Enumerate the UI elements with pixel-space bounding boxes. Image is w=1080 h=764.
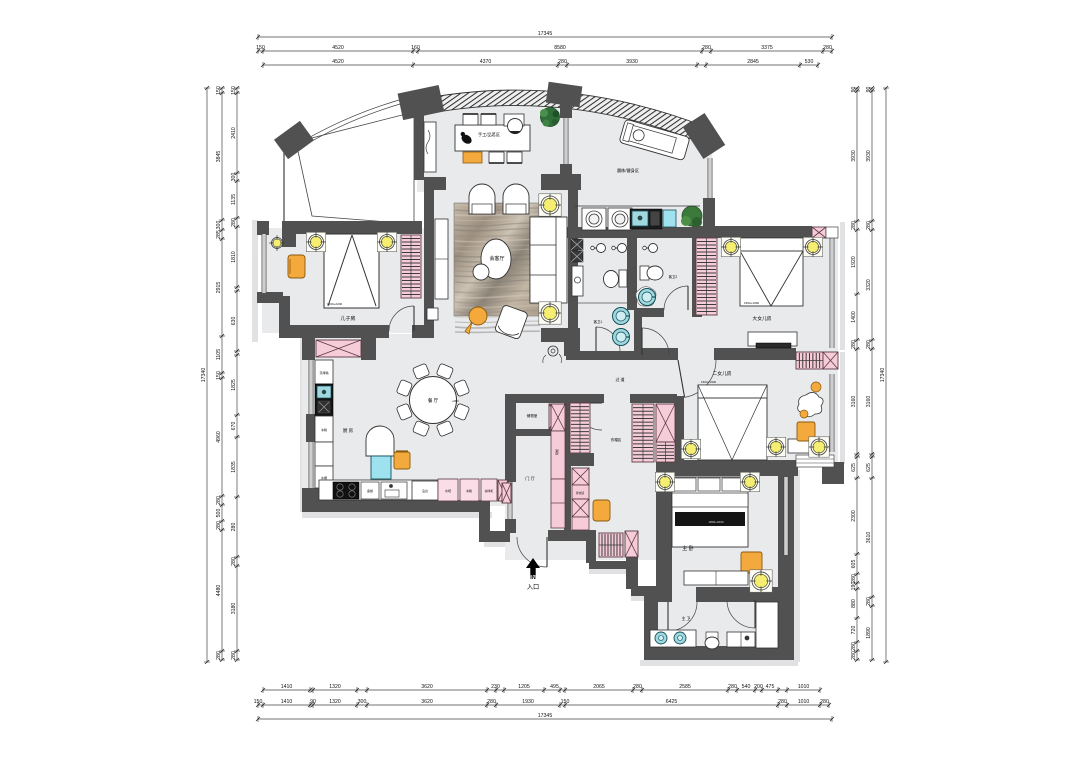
svg-text:625: 625	[866, 463, 872, 472]
svg-text:1135: 1135	[231, 194, 237, 205]
svg-text:17345: 17345	[538, 31, 553, 37]
svg-text:540: 540	[742, 684, 751, 690]
svg-text:1500+1900: 1500+1900	[744, 301, 759, 305]
svg-text:1105: 1105	[216, 349, 222, 360]
svg-text:3620: 3620	[421, 684, 433, 690]
svg-text:二女儿房: 二女儿房	[712, 370, 731, 377]
svg-text:儿子房: 儿子房	[340, 315, 355, 322]
svg-text:280: 280	[851, 221, 857, 230]
svg-text:280: 280	[851, 574, 857, 583]
svg-text:605: 605	[851, 560, 857, 569]
svg-text:150: 150	[254, 699, 263, 705]
svg-text:17340: 17340	[201, 368, 207, 383]
svg-text:1400: 1400	[851, 311, 857, 323]
svg-text:90: 90	[310, 699, 316, 705]
svg-text:门 厅: 门 厅	[525, 475, 535, 482]
svg-text:水吧: 水吧	[445, 488, 451, 493]
svg-text:1920: 1920	[851, 256, 857, 268]
svg-text:1010: 1010	[798, 684, 810, 690]
svg-text:4520: 4520	[332, 59, 344, 65]
svg-text:280: 280	[231, 523, 237, 532]
svg-text:3930: 3930	[866, 150, 872, 162]
svg-text:过 道: 过 道	[615, 376, 624, 382]
svg-text:3320: 3320	[866, 279, 872, 291]
svg-text:1890: 1890	[866, 627, 872, 639]
svg-text:2585: 2585	[679, 684, 691, 690]
svg-text:晨练/健身区: 晨练/健身区	[617, 167, 639, 174]
svg-text:入口: 入口	[527, 584, 539, 591]
svg-text:280: 280	[823, 45, 832, 51]
svg-text:300: 300	[216, 221, 222, 230]
svg-text:280: 280	[866, 221, 872, 230]
svg-text:岛台: 岛台	[422, 488, 428, 493]
svg-text:备餐: 备餐	[367, 488, 373, 493]
svg-text:穿衣镜: 穿衣镜	[576, 491, 585, 495]
svg-text:280: 280	[216, 651, 222, 660]
svg-text:冰箱: 冰箱	[321, 427, 327, 432]
svg-text:主 卫: 主 卫	[681, 615, 690, 621]
svg-text:4520: 4520	[332, 45, 344, 51]
svg-text:285: 285	[216, 230, 222, 239]
svg-text:餐 厅: 餐 厅	[428, 397, 439, 404]
svg-text:大女儿房: 大女儿房	[752, 315, 771, 322]
svg-text:280: 280	[866, 340, 872, 349]
svg-text:280: 280	[851, 642, 857, 651]
svg-text:2915: 2915	[216, 282, 222, 294]
svg-text:4370: 4370	[480, 59, 492, 65]
svg-text:280: 280	[558, 59, 567, 65]
svg-text:衣帽区: 衣帽区	[611, 437, 622, 442]
svg-text:鞋柜: 鞋柜	[554, 449, 559, 455]
svg-text:280: 280	[851, 340, 857, 349]
svg-text:1810: 1810	[231, 251, 237, 263]
svg-text:280: 280	[820, 699, 829, 705]
svg-text:280: 280	[216, 521, 222, 530]
svg-text:530: 530	[805, 59, 814, 65]
svg-text:625: 625	[851, 463, 857, 472]
svg-text:会客厅: 会客厅	[489, 255, 504, 262]
svg-text:咖啡机: 咖啡机	[485, 489, 494, 493]
svg-text:880: 880	[851, 599, 857, 608]
svg-text:4960: 4960	[216, 431, 222, 443]
svg-text:水槽: 水槽	[321, 475, 327, 480]
svg-text:1010: 1010	[798, 699, 810, 705]
svg-text:手工/品茗区: 手工/品茗区	[478, 131, 500, 138]
svg-text:150: 150	[216, 86, 222, 95]
svg-text:90: 90	[866, 87, 872, 93]
svg-text:3180: 3180	[231, 603, 237, 615]
svg-text:客卫1: 客卫1	[594, 319, 603, 324]
svg-text:4480: 4480	[216, 585, 222, 597]
svg-text:储物室: 储物室	[527, 413, 538, 418]
svg-text:1825: 1825	[231, 379, 237, 391]
svg-text:2410: 2410	[231, 127, 237, 139]
svg-text:475: 475	[766, 684, 775, 690]
svg-text:2300: 2300	[851, 510, 857, 522]
svg-text:冰箱: 冰箱	[466, 488, 472, 493]
svg-text:500: 500	[216, 509, 222, 518]
svg-text:150: 150	[216, 371, 222, 380]
svg-text:3620: 3620	[421, 699, 433, 705]
svg-text:3160: 3160	[866, 396, 872, 408]
svg-text:厨 房: 厨 房	[343, 427, 354, 434]
svg-text:蒸烤箱: 蒸烤箱	[319, 370, 328, 375]
svg-text:3160: 3160	[851, 396, 857, 408]
svg-text:1500+2200: 1500+2200	[327, 302, 342, 306]
svg-text:1500+1900: 1500+1900	[701, 380, 716, 384]
svg-text:280: 280	[778, 699, 787, 705]
svg-text:1930: 1930	[522, 699, 534, 705]
svg-text:630: 630	[231, 317, 237, 326]
svg-text:280: 280	[702, 45, 711, 51]
svg-text:17345: 17345	[538, 713, 553, 719]
svg-text:1320: 1320	[329, 684, 341, 690]
svg-text:8580: 8580	[554, 45, 566, 51]
svg-text:280: 280	[231, 218, 237, 227]
svg-text:150: 150	[231, 86, 237, 95]
svg-text:+t800: +t800	[452, 399, 459, 403]
svg-text:280: 280	[231, 651, 237, 660]
svg-text:150: 150	[561, 699, 570, 705]
svg-text:IN: IN	[530, 575, 536, 581]
svg-text:280: 280	[231, 557, 237, 566]
svg-text:3845: 3845	[216, 151, 222, 163]
svg-text:230: 230	[491, 684, 500, 690]
svg-text:2845: 2845	[747, 59, 759, 65]
svg-text:280: 280	[728, 684, 737, 690]
svg-text:17340: 17340	[880, 368, 886, 383]
svg-text:1410: 1410	[281, 699, 293, 705]
svg-text:200: 200	[754, 684, 763, 690]
svg-text:3930: 3930	[851, 150, 857, 162]
svg-text:280: 280	[216, 496, 222, 505]
svg-text:300: 300	[358, 699, 367, 705]
svg-text:2065: 2065	[593, 684, 605, 690]
svg-text:280: 280	[866, 597, 872, 606]
svg-text:280: 280	[851, 651, 857, 660]
svg-text:3375: 3375	[761, 45, 773, 51]
svg-text:150: 150	[256, 45, 265, 51]
svg-text:280: 280	[633, 684, 642, 690]
svg-text:1320: 1320	[329, 699, 341, 705]
svg-text:3930: 3930	[626, 59, 638, 65]
svg-text:90: 90	[851, 87, 857, 93]
svg-text:1410: 1410	[281, 684, 293, 690]
svg-text:主 卧: 主 卧	[682, 545, 693, 552]
svg-text:6425: 6425	[666, 699, 678, 705]
svg-text:190: 190	[851, 582, 857, 591]
svg-text:670: 670	[231, 422, 237, 431]
svg-text:1205: 1205	[518, 684, 530, 690]
svg-text:720: 720	[851, 626, 857, 635]
svg-text:1835: 1835	[231, 461, 237, 473]
svg-text:280: 280	[487, 699, 496, 705]
svg-text:300: 300	[231, 173, 237, 182]
svg-text:160: 160	[411, 45, 420, 51]
svg-text:1800+2200: 1800+2200	[708, 520, 723, 524]
svg-text:495: 495	[550, 684, 559, 690]
svg-text:3610: 3610	[866, 532, 872, 544]
svg-text:客卫2: 客卫2	[669, 274, 678, 279]
